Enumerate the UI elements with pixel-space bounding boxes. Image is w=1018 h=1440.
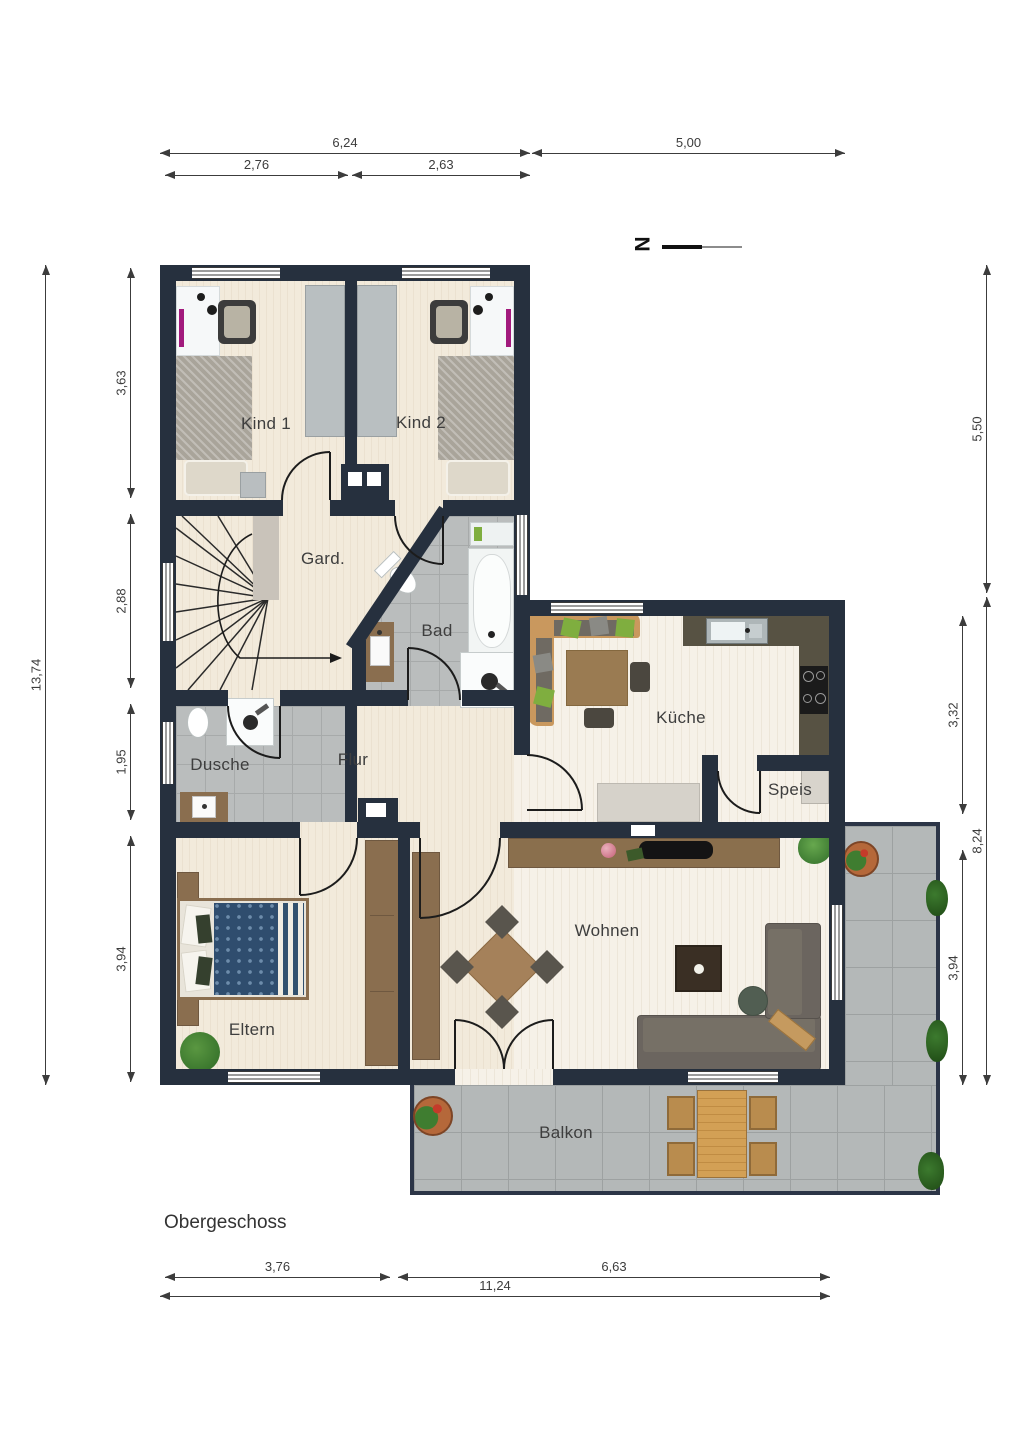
dim-right-8-24: 8,24 [986, 597, 987, 1085]
dim-label: 3,63 [114, 367, 129, 398]
dim-top-2-76: 2,76 [165, 175, 348, 176]
dim-label: 11,24 [476, 1278, 514, 1293]
dim-left-3-94: 3,94 [130, 836, 131, 1082]
dim-top-6-24: 6,24 [160, 153, 530, 154]
room-label-eltern: Eltern [229, 1020, 275, 1040]
dim-label: 3,32 [946, 699, 961, 730]
dim-left-3-63: 3,63 [130, 268, 131, 498]
room-label-wohnen: Wohnen [575, 921, 640, 941]
french-door-arc-left [455, 1020, 504, 1069]
dim-right-5-50: 5,50 [986, 265, 987, 593]
dim-bottom-11-24: 11,24 [160, 1296, 830, 1297]
north-line-thick [662, 245, 702, 249]
dim-label: 6,24 [329, 135, 360, 150]
door-arc-kind1 [282, 452, 330, 500]
dim-label: 6,63 [598, 1259, 629, 1274]
door-arc-wohnen [420, 838, 500, 918]
dim-left-2-88: 2,88 [130, 514, 131, 688]
door-arc-dusche [228, 706, 280, 758]
door-arc-speis [718, 771, 760, 813]
dim-label: 3,94 [946, 952, 961, 983]
room-label-gard: Gard. [301, 549, 345, 569]
dim-left-1-95: 1,95 [130, 704, 131, 820]
room-label-dusche: Dusche [190, 755, 249, 775]
room-label-kind1: Kind 1 [241, 414, 291, 434]
room-label-bad: Bad [421, 621, 452, 641]
door-arc-kind2 [395, 516, 443, 564]
room-label-speis: Speis [768, 780, 812, 800]
french-door-arc-right [504, 1020, 553, 1069]
dim-left-13-74: 13,74 [45, 265, 46, 1085]
dim-label: 3,94 [114, 943, 129, 974]
page-title: Obergeschoss [164, 1212, 287, 1234]
north-indicator: N [630, 228, 750, 268]
room-label-balkon: Balkon [539, 1123, 593, 1143]
dim-label: 3,76 [262, 1259, 293, 1274]
dim-label: 2,76 [241, 157, 272, 172]
floorplan-canvas: Kind 1 Kind 2 Gard. Bad Küche Speis Dusc… [0, 0, 1018, 1440]
dim-label: 2,63 [425, 157, 456, 172]
dim-label: 5,00 [673, 135, 704, 150]
dim-right-3-94: 3,94 [962, 850, 963, 1085]
dim-label: 1,95 [114, 746, 129, 777]
door-arc-kueche [527, 755, 582, 810]
dim-top-5-00: 5,00 [532, 153, 845, 154]
room-label-kueche: Küche [656, 708, 706, 728]
dim-bottom-6-63: 6,63 [398, 1277, 830, 1278]
dim-right-3-32: 3,32 [962, 616, 963, 814]
door-arc-bad [408, 648, 460, 700]
dim-label: 2,88 [114, 585, 129, 616]
north-line-thin [702, 246, 742, 248]
north-letter: N [632, 236, 656, 251]
room-label-flur: Flur [338, 750, 368, 770]
dim-bottom-3-76: 3,76 [165, 1277, 390, 1278]
room-label-kind2: Kind 2 [396, 413, 446, 433]
dim-label: 13,74 [29, 656, 44, 695]
door-swings [0, 0, 1018, 1440]
door-arc-eltern [300, 838, 357, 895]
dim-top-2-63: 2,63 [352, 175, 530, 176]
dim-label: 5,50 [970, 413, 985, 444]
dim-label: 8,24 [970, 825, 985, 856]
